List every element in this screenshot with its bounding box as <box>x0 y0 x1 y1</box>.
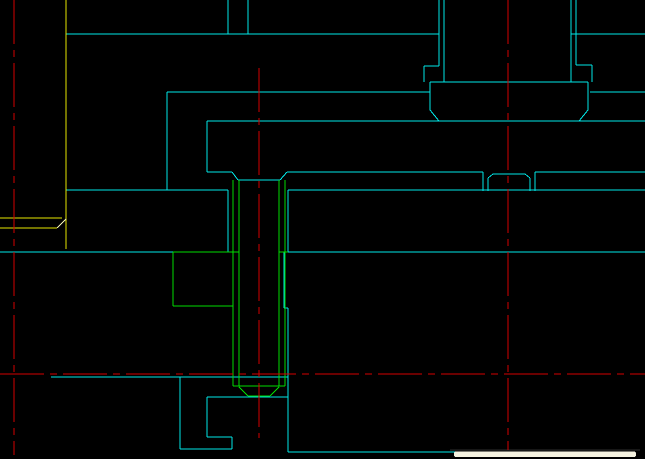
solid-geometry-group <box>0 0 645 452</box>
cad-line-cyan <box>525 174 530 178</box>
cad-line-cyan <box>280 172 287 180</box>
cad-line-pale <box>57 219 66 228</box>
cad-line-green <box>270 387 279 396</box>
overlay-group <box>454 452 636 458</box>
cad-line-green <box>239 387 248 396</box>
cad-line-cyan <box>430 110 439 121</box>
white-status-bar-fragment <box>454 452 636 458</box>
cad-geometry-layer <box>0 0 645 459</box>
centerline-group <box>0 0 645 455</box>
cad-line-cyan <box>232 172 238 180</box>
cad-line-cyan <box>579 110 588 121</box>
cad-viewport[interactable] <box>0 0 645 459</box>
cad-line-cyan <box>488 174 493 178</box>
